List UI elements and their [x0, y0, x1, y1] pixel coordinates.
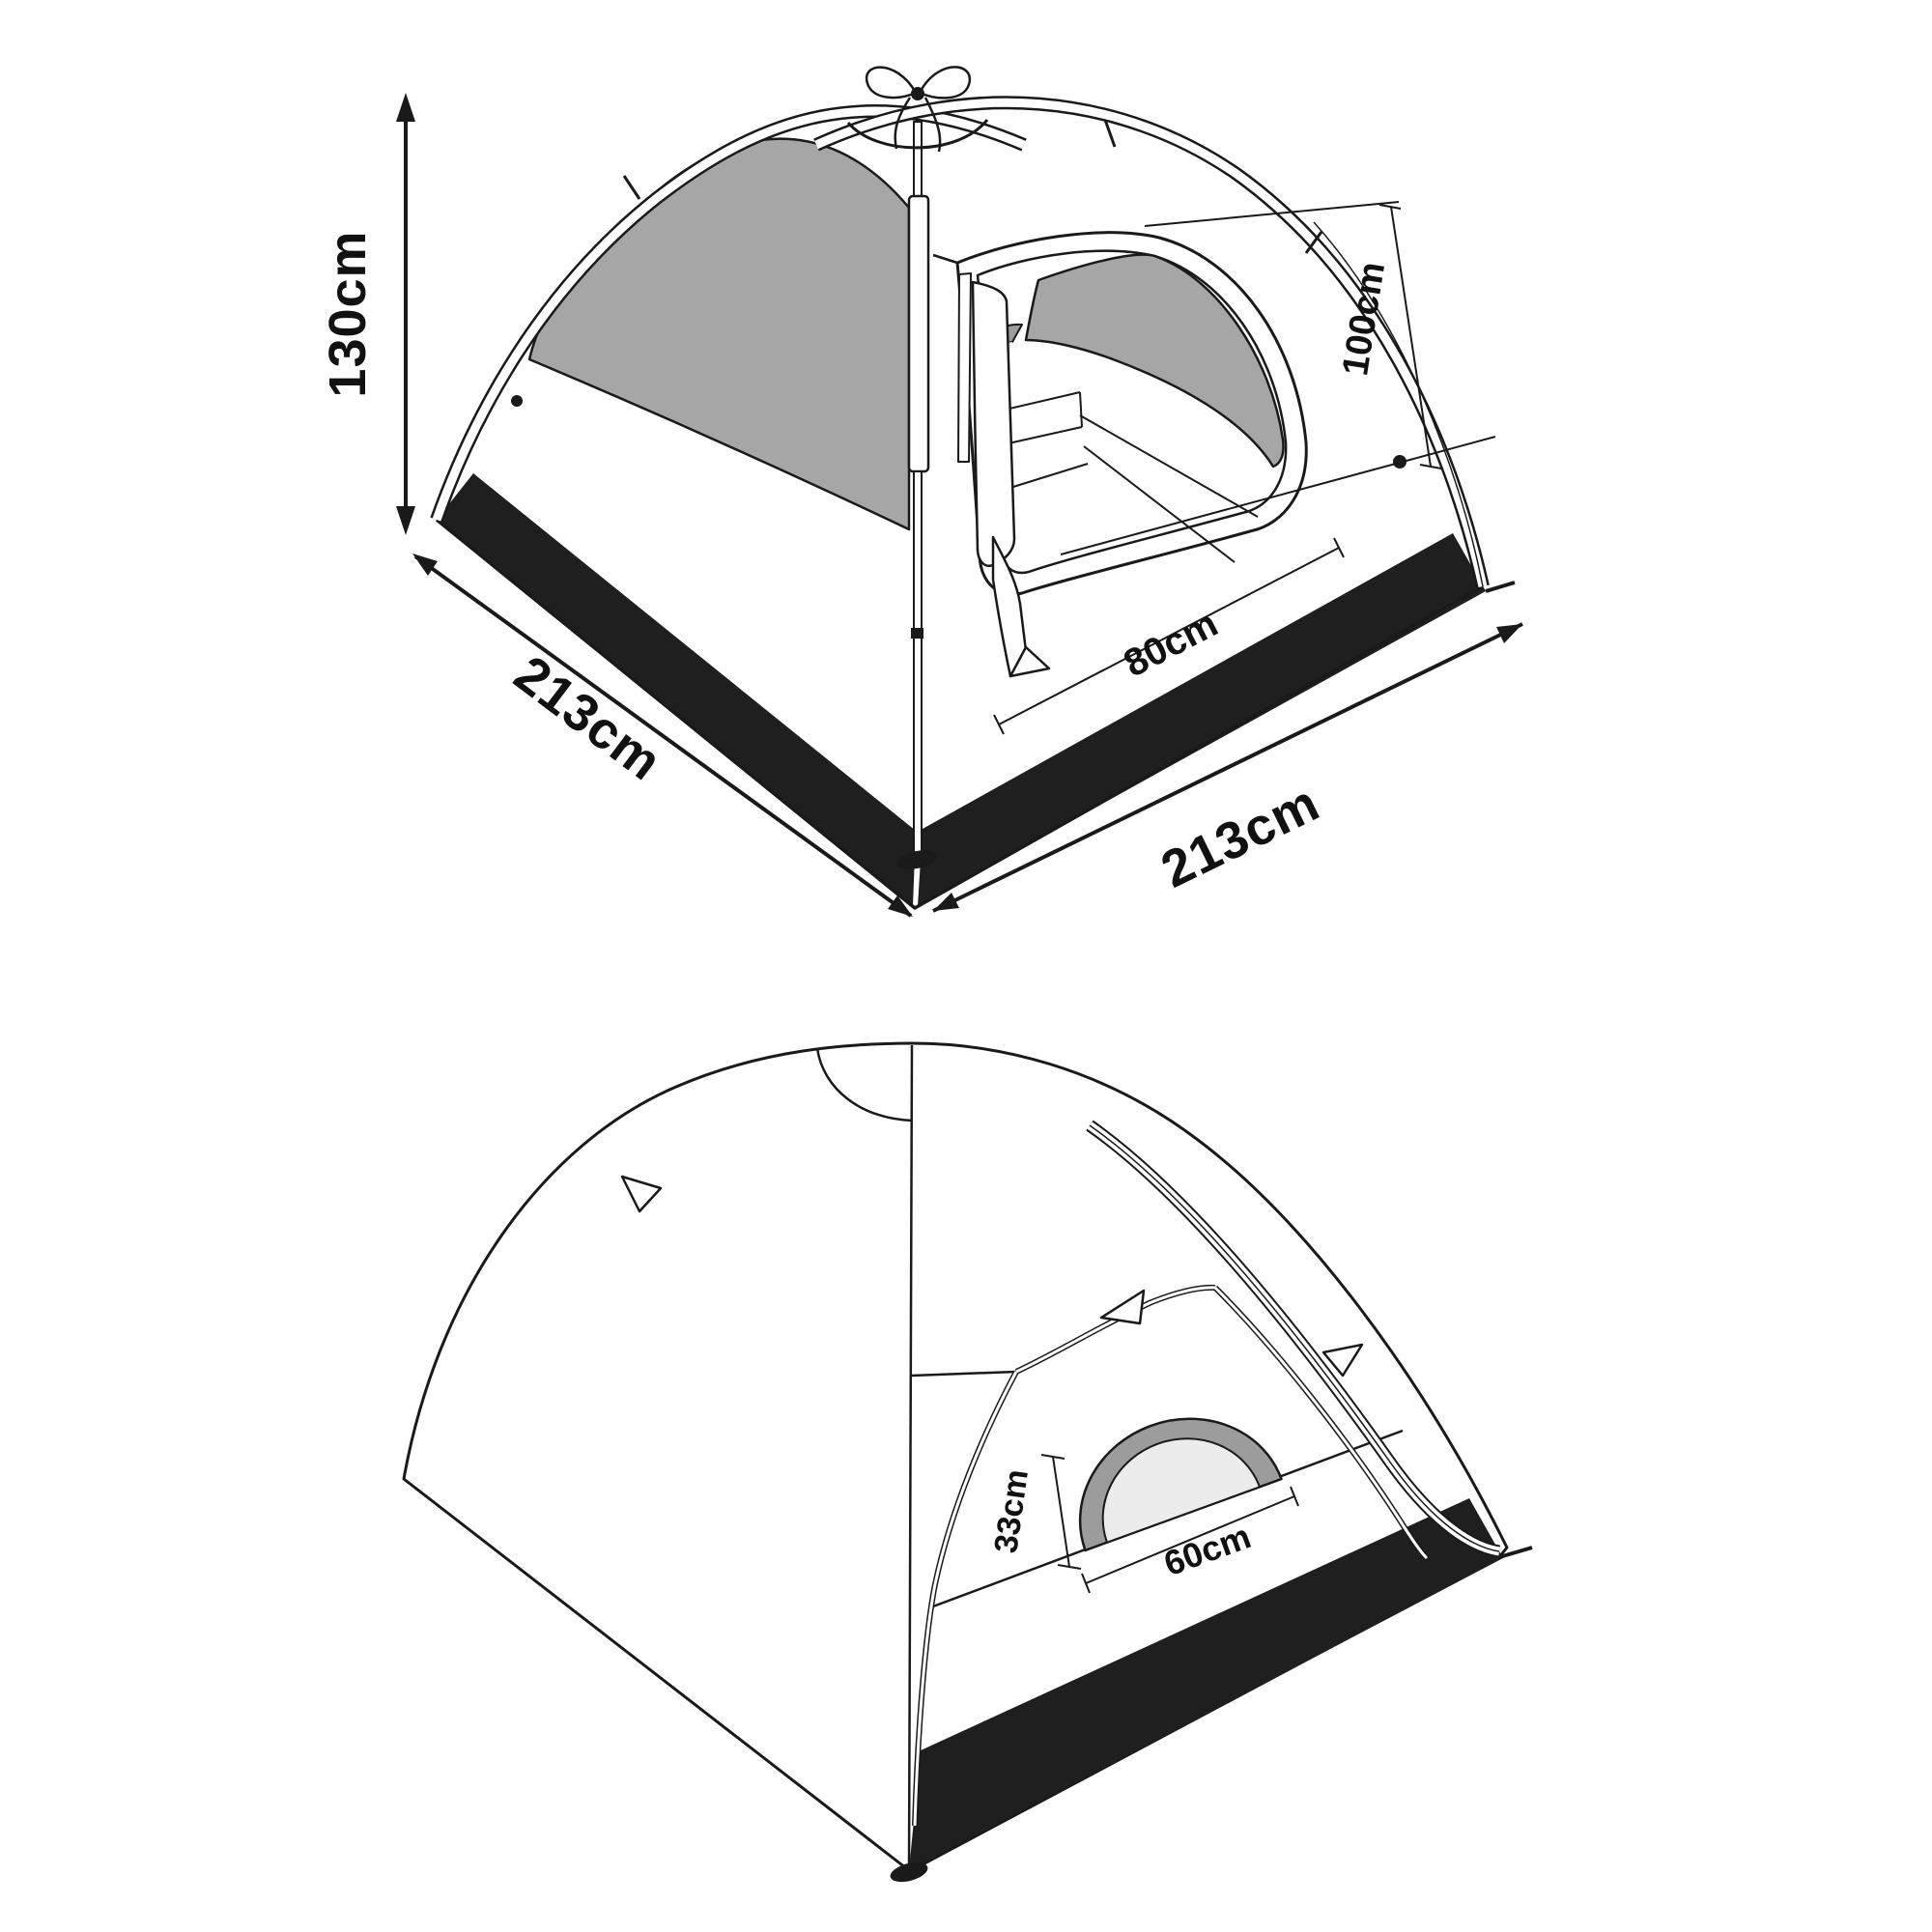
- tent-dimensions-diagram: 130cm 213cm 213cm 100cm 80cm: [0, 0, 1932, 1932]
- door-tie-strap: [958, 273, 971, 462]
- label-height: 130cm: [319, 230, 377, 397]
- door-flap: [973, 282, 1014, 566]
- tent-body: [437, 96, 1483, 908]
- tent-rear-view: 33cm 60cm: [404, 1043, 1532, 1886]
- tent-perspective-view: 130cm 213cm 213cm 100cm 80cm: [319, 67, 1522, 917]
- dim-height-130: [396, 93, 415, 535]
